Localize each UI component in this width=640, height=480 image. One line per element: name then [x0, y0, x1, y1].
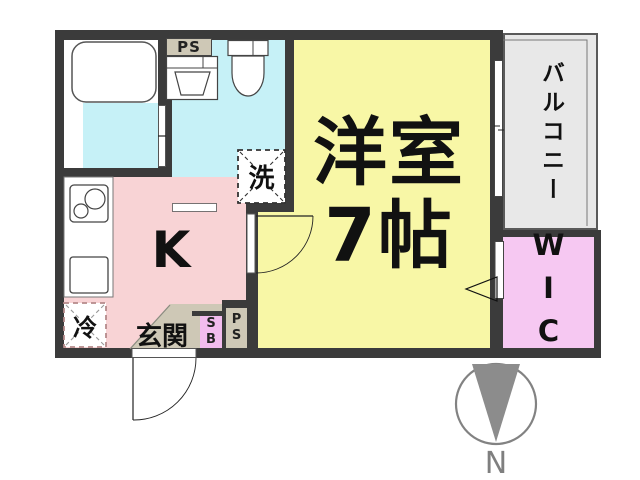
bathroom-floor	[83, 103, 158, 168]
shoe-box-label: S B	[200, 316, 222, 348]
shoe-box-line2: B	[206, 332, 216, 348]
western-room-name: 洋室	[313, 112, 465, 195]
wall-bath-divider	[158, 40, 172, 177]
kitchen-label: K	[121, 224, 221, 276]
floor-plan: 洋室 7帖 K 玄関 バルコニー WIC PS 洗 冷 S B P S N	[0, 0, 640, 480]
entrance-label: 玄関	[128, 320, 196, 348]
washing-machine-label: 洗	[238, 150, 285, 203]
balcony-label: バルコニー	[505, 38, 596, 228]
western-room-label: 洋室 7帖	[284, 102, 494, 287]
entrance-door-arc	[133, 358, 196, 420]
wall-top	[55, 30, 503, 40]
compass-north-arrow-icon	[472, 364, 520, 442]
wall-wic-right	[594, 230, 601, 358]
wall-bath-bottom	[64, 168, 172, 177]
compass-north-label: N	[478, 446, 514, 480]
refrigerator-label: 冷	[64, 303, 106, 347]
wall-left	[55, 30, 64, 358]
shoe-box-line1: S	[206, 316, 215, 332]
western-room-size: 7帖	[324, 195, 454, 278]
wic-label: WIC	[505, 239, 592, 346]
compass-circle-icon	[456, 364, 536, 444]
pipe-space-bottom-line1: P	[232, 312, 242, 328]
pipe-space-bottom-label: P S	[226, 308, 247, 348]
pipe-space-bottom-line2: S	[232, 328, 241, 344]
pipe-space-top-label: PS	[166, 38, 212, 56]
